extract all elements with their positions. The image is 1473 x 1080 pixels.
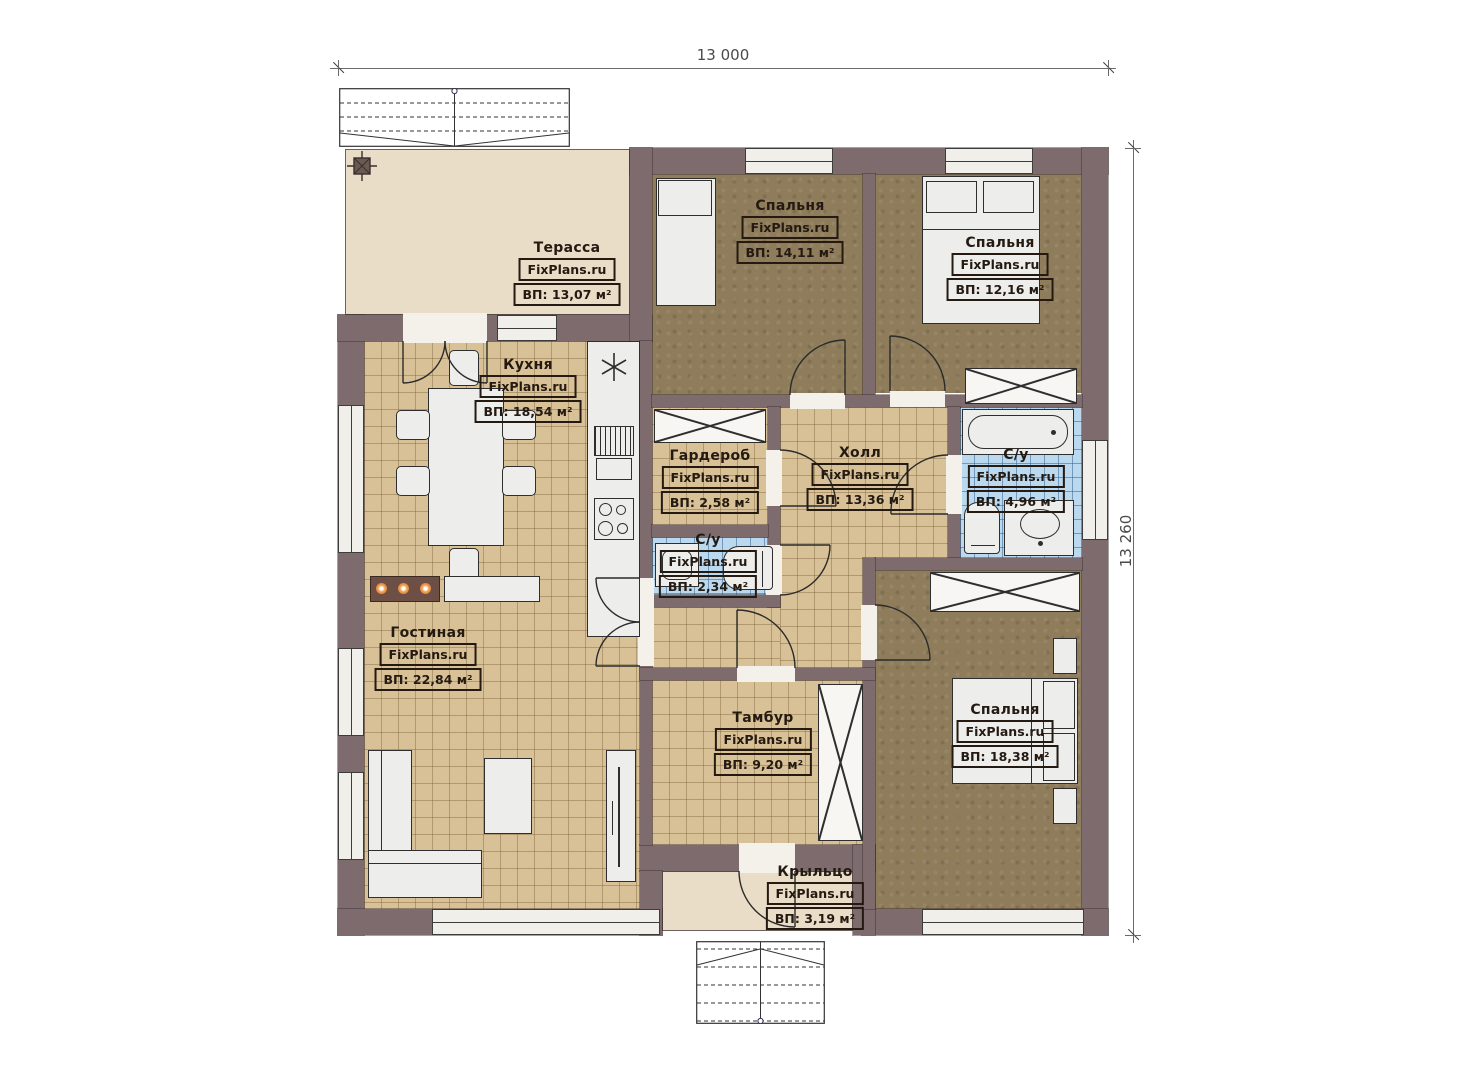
watermark: FixPlans.ru [812, 463, 909, 486]
kitchen-counter [587, 341, 640, 637]
dimension-end [1125, 148, 1141, 149]
label-vestibule: Тамбур FixPlans.ru ВП: 9,20 м² [714, 710, 812, 776]
dimension-end [1125, 935, 1141, 936]
door-opening-bathroom-main [946, 455, 962, 514]
stairs-porch [696, 941, 825, 1024]
room-name: С/у [695, 532, 720, 548]
column-marker [347, 151, 377, 181]
room-name: Гостиная [390, 625, 465, 641]
kitchen-sink [594, 426, 634, 456]
label-bathroom-main: С/у FixPlans.ru ВП: 4,96 м² [967, 447, 1065, 513]
window-left-kitchen [338, 405, 364, 553]
room-area: ВП: 2,58 м² [661, 491, 759, 514]
door-opening-terrace [403, 313, 487, 343]
watermark: FixPlans.ru [480, 375, 577, 398]
watermark: FixPlans.ru [662, 466, 759, 489]
sofa-section-horizontal [368, 850, 482, 898]
room-name: Кухня [503, 357, 553, 373]
watermark: FixPlans.ru [742, 216, 839, 239]
wall-exterior-right [1082, 148, 1108, 935]
watermark: FixPlans.ru [952, 253, 1049, 276]
pillow [926, 181, 977, 213]
stove [594, 498, 634, 540]
fireplace [370, 576, 440, 602]
nightstand [1053, 788, 1077, 824]
room-name: Спальня [965, 235, 1034, 251]
room-area: ВП: 18,54 м² [475, 400, 582, 423]
window-right-bathroom [1082, 440, 1108, 540]
wall-terrace-east [630, 148, 652, 341]
window-kitchen-north [497, 315, 557, 341]
chair [396, 466, 430, 496]
window-bottom-bedroom [922, 909, 1084, 935]
room-name: Холл [839, 445, 881, 461]
floor-hall-south [780, 558, 863, 668]
window-bottom-living [432, 909, 660, 935]
window-top-1 [745, 148, 833, 174]
watermark: FixPlans.ru [660, 550, 757, 573]
label-wardrobe-room: Гардероб FixPlans.ru ВП: 2,58 м² [661, 448, 759, 514]
wall-kitchen-north [338, 315, 652, 341]
room-area: ВП: 13,07 м² [514, 283, 621, 306]
chair [396, 410, 430, 440]
stairs-terrace [339, 88, 570, 147]
label-bathroom-small: С/у FixPlans.ru ВП: 2,34 м² [659, 532, 757, 598]
door-opening-vestibule [737, 666, 795, 682]
pillow [658, 180, 712, 216]
watermark: FixPlans.ru [519, 258, 616, 281]
room-area: ВП: 14,11 м² [737, 241, 844, 264]
fridge-icon [597, 350, 631, 384]
wardrobe-cabinet [930, 572, 1080, 612]
dimension-end [1108, 60, 1109, 76]
bed-single [656, 178, 716, 306]
room-name: Спальня [970, 702, 1039, 718]
dimension-end [338, 60, 339, 76]
dimension-width: 13 000 [697, 46, 750, 64]
room-area: ВП: 4,96 м² [967, 490, 1065, 513]
tv-stand [606, 750, 636, 882]
watermark: FixPlans.ru [380, 643, 477, 666]
room-name: Терасса [534, 240, 601, 256]
chair [502, 466, 536, 496]
label-bedroom-master: Спальня FixPlans.ru ВП: 18,38 м² [952, 702, 1059, 768]
kitchen-sink-basin [596, 458, 632, 480]
label-porch: Крыльцо FixPlans.ru ВП: 3,19 м² [766, 864, 864, 930]
floor-corridor [652, 607, 780, 668]
watermark: FixPlans.ru [968, 465, 1065, 488]
room-area: ВП: 2,34 м² [659, 575, 757, 598]
door-opening-wardrobe [766, 450, 782, 506]
door-opening-bedroom-right [890, 391, 945, 407]
dimension-height: 13 260 [1117, 515, 1135, 568]
door-opening-bedroom-master [861, 605, 877, 660]
watermark: FixPlans.ru [715, 728, 812, 751]
room-area: ВП: 18,38 м² [952, 745, 1059, 768]
room-name: Спальня [755, 198, 824, 214]
kitchen-shelf [444, 576, 540, 602]
label-kitchen: Кухня FixPlans.ru ВП: 18,54 м² [475, 357, 582, 423]
room-name: Крыльцо [777, 864, 852, 880]
label-hall: Холл FixPlans.ru ВП: 13,36 м² [807, 445, 914, 511]
watermark: FixPlans.ru [957, 720, 1054, 743]
room-name: С/у [1003, 447, 1028, 463]
room-name: Тамбур [732, 710, 793, 726]
room-area: ВП: 9,20 м² [714, 753, 812, 776]
room-area: ВП: 13,36 м² [807, 488, 914, 511]
room-area: ВП: 12,16 м² [947, 278, 1054, 301]
wall-bedrooms-divider [863, 174, 875, 395]
wardrobe-cabinet [818, 684, 863, 841]
label-bedroom-right: Спальня FixPlans.ru ВП: 12,16 м² [947, 235, 1054, 301]
floor-plan: Терасса FixPlans.ru ВП: 13,07 м² Кухня F… [0, 0, 1473, 1080]
wall-exterior-top [630, 148, 1108, 174]
nightstand [1053, 638, 1077, 674]
wardrobe-cabinet [965, 368, 1077, 404]
window-left-living-2 [338, 772, 364, 860]
window-top-2 [945, 148, 1033, 174]
room-area: ВП: 22,84 м² [375, 668, 482, 691]
window-left-living-1 [338, 648, 364, 736]
label-bedroom-top: Спальня FixPlans.ru ВП: 14,11 м² [737, 198, 844, 264]
door-opening-bedroom-top [790, 393, 845, 409]
room-area: ВП: 3,19 м² [766, 907, 864, 930]
coffee-table [484, 758, 532, 834]
pillow [983, 181, 1034, 213]
door-opening-living [638, 578, 654, 666]
label-terrace: Терасса FixPlans.ru ВП: 13,07 м² [514, 240, 621, 306]
wall-bedroom-master-north [875, 558, 1082, 570]
watermark: FixPlans.ru [767, 882, 864, 905]
label-living-room: Гостиная FixPlans.ru ВП: 22,84 м² [375, 625, 482, 691]
wardrobe-cabinet [654, 409, 766, 443]
dimension-line-top [330, 68, 1116, 69]
room-name: Гардероб [669, 448, 750, 464]
